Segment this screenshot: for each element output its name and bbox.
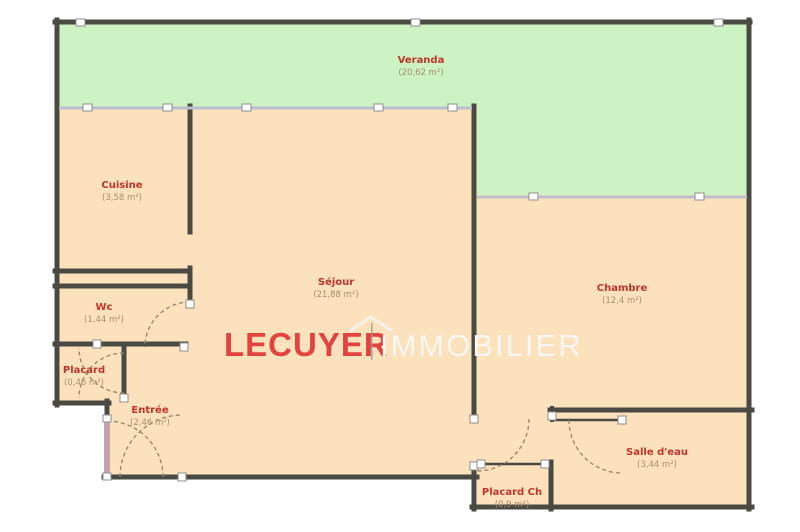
hinge-marker <box>120 394 128 402</box>
hinge-marker <box>103 473 111 480</box>
room-name: Placard Ch <box>482 487 542 498</box>
brand-divider <box>371 323 373 360</box>
window-marker <box>695 193 704 200</box>
room-area: (3,44 m²) <box>637 460 677 470</box>
room-area: (20,62 m²) <box>398 68 443 78</box>
floor-plan: Veranda (20,62 m²) Cuisine (3,58 m²) Séj… <box>0 0 800 532</box>
window-marker <box>411 19 420 26</box>
room-name: Veranda <box>398 55 445 66</box>
hinge-marker <box>178 473 186 481</box>
room-area: (3,58 m²) <box>102 193 142 203</box>
hinge-marker <box>618 416 626 424</box>
room-name: Salle d'eau <box>626 447 688 458</box>
room-name: Cuisine <box>101 180 142 191</box>
brand-secondary: IMMOBILIER <box>380 328 583 363</box>
window-marker <box>529 193 538 200</box>
window-marker <box>242 104 251 111</box>
room-name: Placard <box>63 365 105 376</box>
hinge-marker <box>93 340 101 348</box>
floor-plan-page: Veranda (20,62 m²) Cuisine (3,58 m²) Séj… <box>0 0 800 532</box>
hinge-marker <box>548 412 556 420</box>
room-area: (0,46 m²) <box>64 378 104 388</box>
room-name: Séjour <box>318 276 354 288</box>
room-name: Wc <box>96 302 113 313</box>
room-area: (12,4 m²) <box>602 296 642 306</box>
entry-door-panel <box>104 421 110 477</box>
hinge-marker <box>103 415 111 422</box>
hinge-marker <box>541 460 549 468</box>
room-area: (0,9 m²) <box>495 500 530 510</box>
hinge-marker <box>477 460 485 468</box>
window-marker <box>83 104 92 111</box>
window-marker <box>374 104 383 111</box>
hinge-marker <box>470 415 478 423</box>
hinge-marker <box>186 300 194 308</box>
window-marker <box>448 104 457 111</box>
window-marker <box>163 104 172 111</box>
room-area: (2,46 m²) <box>130 418 170 428</box>
room-area: (21,88 m²) <box>313 290 358 300</box>
hinge-marker <box>180 343 188 351</box>
room-area: (1,44 m²) <box>84 315 124 325</box>
room-name: Entrée <box>131 404 168 416</box>
window-marker <box>714 19 723 26</box>
window-marker <box>76 19 85 26</box>
brand-primary: LECUYER <box>224 326 389 363</box>
room-name: Chambre <box>597 283 648 294</box>
